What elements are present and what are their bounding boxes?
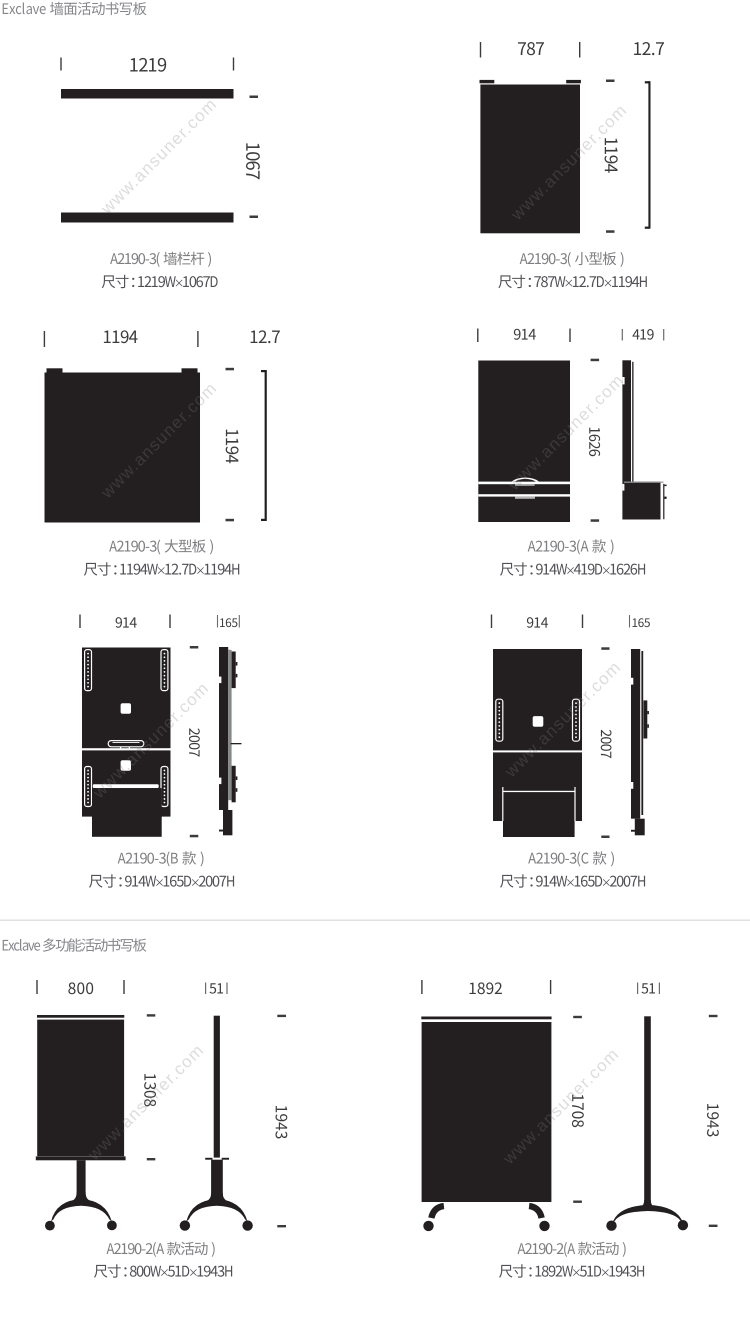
svg-text:www.ansuner.com: www.ansuner.com xyxy=(97,94,221,218)
